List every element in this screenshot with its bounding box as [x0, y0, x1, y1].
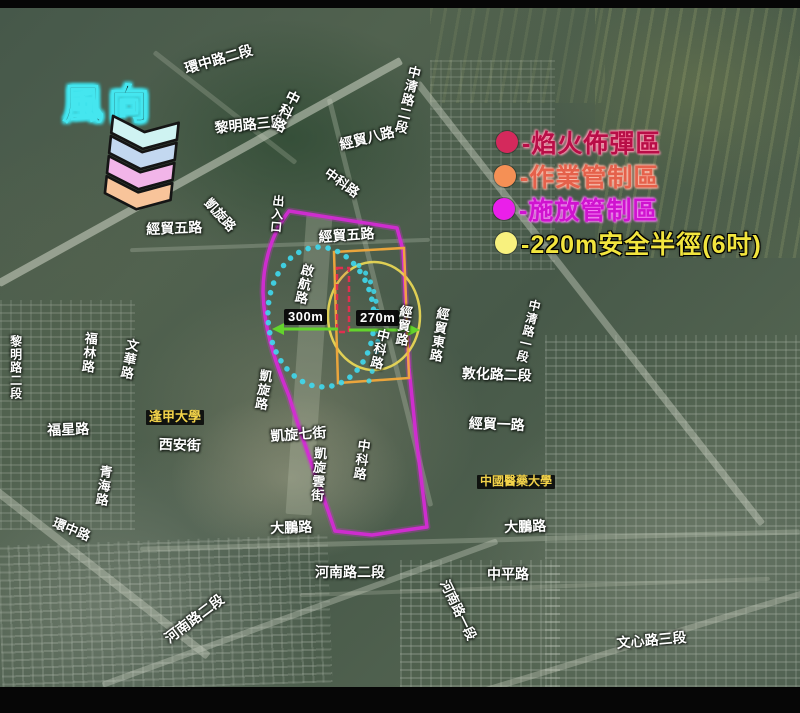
landmark-china-medical-university: 中國醫藥大學 [477, 475, 555, 489]
fireworks-zone-map: 300m 270m 環中路二段 黎明路三段 中科路 中清路二段 經貿八路 中科路… [0, 0, 800, 713]
letterbox-bottom [0, 687, 800, 713]
road-label-fuxing: 福星路 [47, 422, 89, 438]
road-label-xian-street: 西安街 [158, 437, 200, 453]
wind-chevron-icon [97, 112, 187, 220]
road-label-dapeng-w: 大鵬路 [270, 520, 312, 536]
legend-item-release-zone: -施放管制區 [493, 191, 658, 227]
bomb-deploy-marker [337, 268, 349, 332]
distance-label-west: 300m [284, 309, 327, 325]
road-label-henan-sec2: 河南路二段 [315, 565, 385, 580]
legend-item-safety-radius: -220m安全半徑(6吋) [495, 225, 762, 261]
legend-item-operation-zone: -作業管制區 [494, 158, 659, 194]
legend-label-safety-radius: -220m安全半徑(6吋) [521, 225, 762, 261]
road-label-liming-sec2: 黎明路二段 [9, 335, 22, 400]
legend-label-release-zone: -施放管制區 [519, 191, 658, 227]
road-label-jingmao1: 經貿一路 [468, 416, 524, 433]
legend-dot-operation-zone [494, 165, 516, 187]
road-label-jingmao5-w: 經貿五路 [146, 220, 202, 237]
legend-label-bomb-area: -焰火佈彈區 [522, 124, 661, 160]
road-label-dapeng-e: 大鵬路 [504, 519, 546, 535]
letterbox-top [0, 0, 800, 8]
road-label-dunhua-sec2: 敦化路二段 [461, 366, 531, 383]
legend-dot-safety-radius [495, 232, 517, 254]
road-label-zhongping: 中平路 [487, 567, 529, 582]
legend-label-operation-zone: -作業管制區 [520, 158, 659, 194]
legend-item-bomb-area: -焰火佈彈區 [496, 124, 661, 160]
road-label-fulin: 福林路 [80, 331, 98, 374]
release-control-boundary-core [263, 211, 427, 535]
distance-label-east: 270m [356, 310, 399, 326]
legend-dot-bomb-area [496, 131, 518, 153]
label-entrance: 出入口 [269, 194, 285, 234]
legend-dot-release-zone [493, 198, 515, 220]
road-label-kaixuan-yun-st: 凱旋雲街 [309, 446, 327, 503]
landmark-fengchia-university: 逢甲大學 [146, 410, 204, 425]
